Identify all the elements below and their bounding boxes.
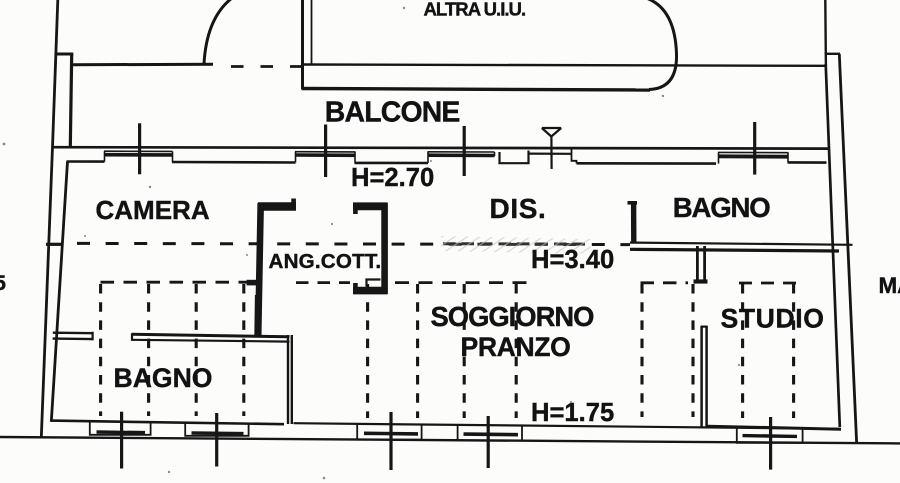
svg-text:DIS.: DIS. (490, 193, 547, 224)
svg-text:BAGNO: BAGNO (673, 192, 770, 223)
svg-text:CAMERA: CAMERA (96, 195, 210, 225)
svg-text:BAGNO: BAGNO (114, 363, 213, 393)
svg-text:H=1.75: H=1.75 (531, 399, 614, 427)
svg-text:STUDIO: STUDIO (721, 304, 825, 334)
svg-text:SOGGIORNO: SOGGIORNO (431, 301, 595, 332)
svg-text:ANG.COTT.: ANG.COTT. (269, 250, 382, 273)
svg-text:PRANZO: PRANZO (461, 332, 571, 362)
svg-text:ALTRA U.I.U.: ALTRA U.I.U. (424, 0, 526, 19)
svg-text:5: 5 (0, 271, 6, 295)
svg-text:BALCONE: BALCONE (325, 96, 460, 128)
svg-text:H=3.40: H=3.40 (531, 246, 614, 274)
svg-text:H=2.70: H=2.70 (351, 164, 434, 192)
svg-text:MA: MA (879, 273, 900, 298)
